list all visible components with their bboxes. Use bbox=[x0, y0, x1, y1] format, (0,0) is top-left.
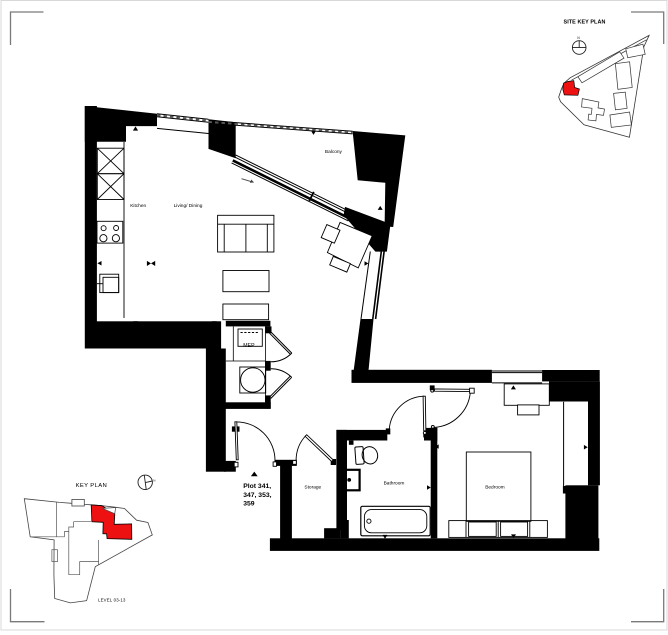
svg-text:N: N bbox=[153, 479, 155, 483]
svg-text:MEP: MEP bbox=[243, 343, 255, 349]
svg-text:Storage: Storage bbox=[304, 485, 321, 491]
svg-text:Plot 341,: Plot 341, bbox=[243, 483, 271, 490]
svg-text:Kitchen: Kitchen bbox=[130, 203, 146, 209]
svg-text:KEY PLAN: KEY PLAN bbox=[76, 483, 108, 489]
svg-text:LEVEL 03-13: LEVEL 03-13 bbox=[98, 598, 126, 603]
svg-text:Bedroom: Bedroom bbox=[485, 484, 504, 490]
svg-text:347, 353,: 347, 353, bbox=[243, 492, 271, 499]
svg-text:Living/ Dining: Living/ Dining bbox=[174, 203, 203, 209]
svg-text:Bathroom: Bathroom bbox=[384, 480, 405, 486]
svg-text:359: 359 bbox=[243, 501, 255, 508]
svg-text:SITE KEY PLAN: SITE KEY PLAN bbox=[564, 20, 606, 26]
svg-text:Balcony: Balcony bbox=[325, 149, 343, 155]
